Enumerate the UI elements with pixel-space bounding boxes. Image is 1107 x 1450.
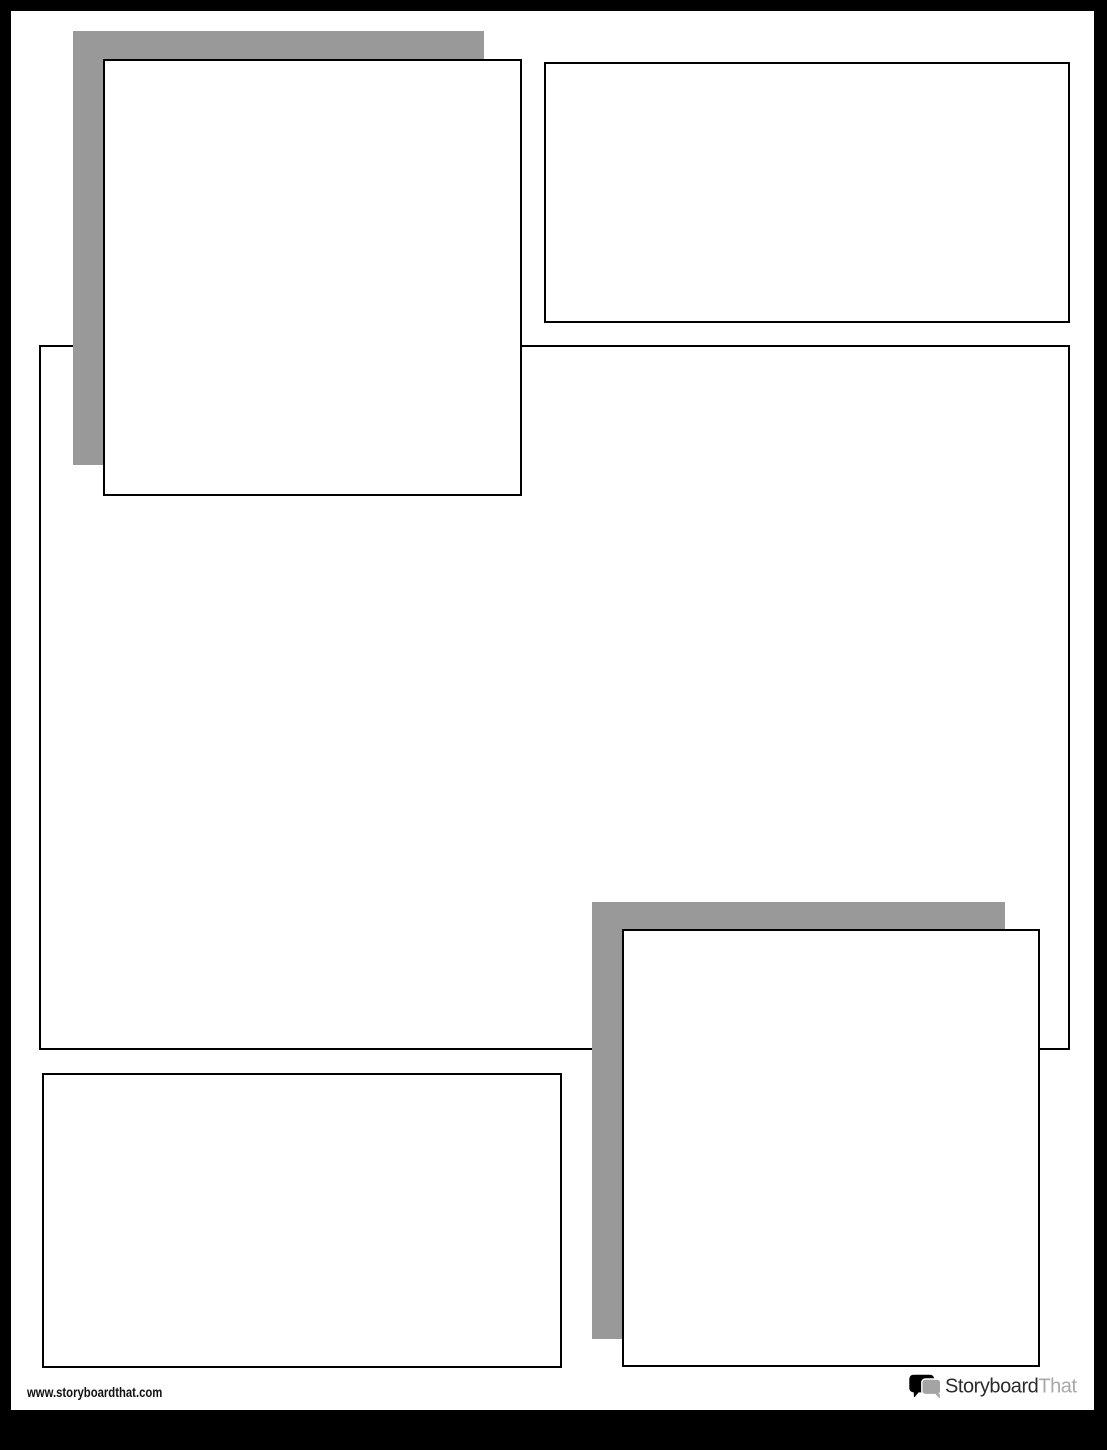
svg-text:StoryboardThat: StoryboardThat (945, 1375, 1077, 1397)
